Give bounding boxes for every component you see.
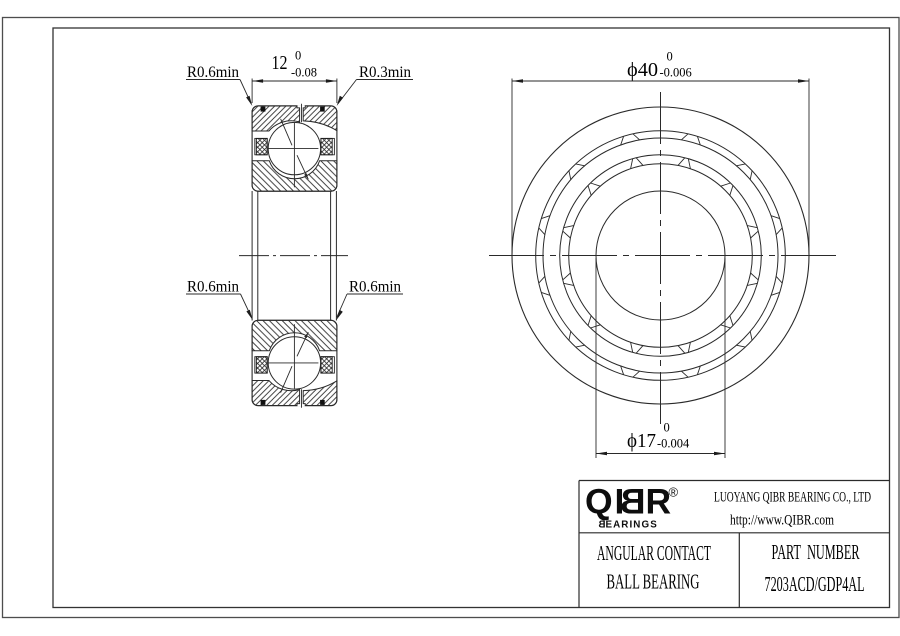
- svg-text:7203ACD/GDP4AL: 7203ACD/GDP4AL: [765, 572, 865, 596]
- svg-text:B: B: [598, 520, 605, 531]
- svg-text:R: R: [646, 482, 672, 522]
- svg-text:0: 0: [664, 421, 670, 435]
- svg-text:LUOYANG QIBR BEARING CO., LTD: LUOYANG QIBR BEARING CO., LTD: [714, 490, 871, 506]
- svg-text:Q: Q: [585, 482, 613, 522]
- svg-text:ϕ40: ϕ40: [627, 59, 658, 81]
- svg-text:ϕ17: ϕ17: [627, 430, 656, 452]
- svg-text:12: 12: [272, 52, 288, 74]
- svg-text:0: 0: [295, 49, 301, 63]
- svg-text:ANGULAR CONTACT: ANGULAR CONTACT: [597, 541, 711, 565]
- svg-text:R0.3min: R0.3min: [359, 64, 411, 81]
- svg-text:-0.006: -0.006: [660, 66, 692, 80]
- svg-text:-0.08: -0.08: [291, 66, 317, 80]
- svg-text:B: B: [620, 482, 646, 522]
- svg-text:-0.004: -0.004: [657, 437, 690, 451]
- svg-text:R0.6min: R0.6min: [349, 279, 401, 296]
- svg-text:®: ®: [669, 485, 679, 500]
- svg-text:R0.6min: R0.6min: [187, 64, 239, 81]
- svg-text:EARINGS: EARINGS: [606, 520, 658, 531]
- svg-text:BALL BEARING: BALL BEARING: [607, 570, 700, 594]
- svg-text:http://www.QIBR.com: http://www.QIBR.com: [730, 513, 834, 529]
- svg-text:R0.6min: R0.6min: [187, 279, 239, 296]
- svg-text:0: 0: [667, 50, 673, 64]
- svg-text:PART NUMBER: PART NUMBER: [772, 540, 860, 564]
